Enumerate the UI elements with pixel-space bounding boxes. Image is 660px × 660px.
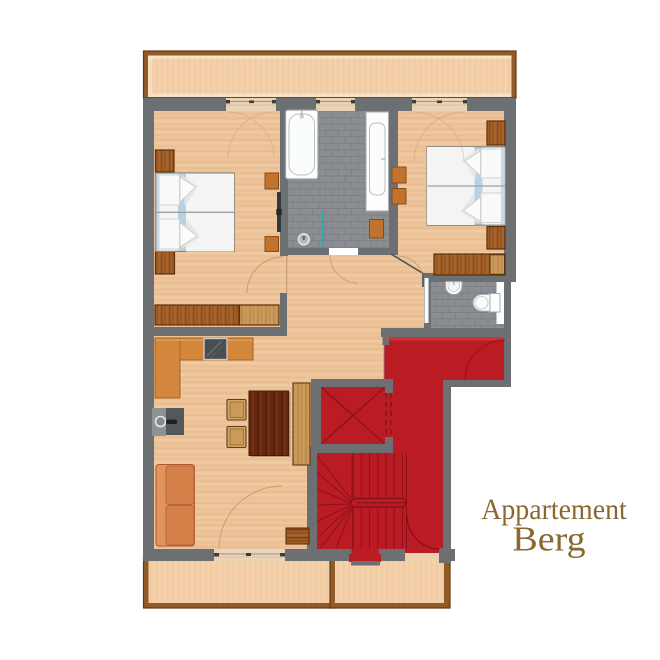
- svg-text:Berg: Berg: [512, 519, 585, 558]
